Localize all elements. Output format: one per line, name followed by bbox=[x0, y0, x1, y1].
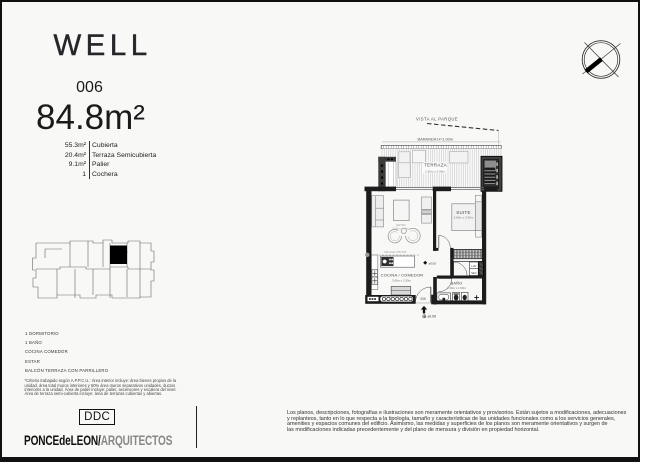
svg-text:BAÑO: BAÑO bbox=[451, 280, 463, 285]
svg-text:BARANDA H=1.00m: BARANDA H=1.00m bbox=[418, 136, 454, 141]
svg-text:3.60m x 4.09m: 3.60m x 4.09m bbox=[392, 227, 409, 231]
svg-text:ESTAR: ESTAR bbox=[396, 223, 405, 227]
svg-text:1.50m x 2.06m: 1.50m x 2.06m bbox=[425, 169, 445, 173]
svg-text:LAV: LAV bbox=[471, 264, 476, 268]
svg-text:TERRAZA: TERRAZA bbox=[424, 163, 447, 168]
svg-text:2.00m x 1.50m: 2.00m x 1.50m bbox=[447, 286, 467, 290]
svg-text:±0.00: ±0.00 bbox=[429, 261, 437, 265]
svg-text:SEC: SEC bbox=[471, 271, 477, 275]
svg-text:3.60m x 3.60m: 3.60m x 3.60m bbox=[454, 216, 474, 220]
svg-text:COCINA / COMEDOR: COCINA / COMEDOR bbox=[381, 273, 424, 278]
svg-text:3.60m x 2.59m: 3.60m x 2.59m bbox=[392, 279, 412, 283]
svg-text:V.05 21x11 SH5 SH5: V.05 21x11 SH5 SH5 bbox=[384, 251, 407, 254]
svg-text:VISTA AL PARQUE: VISTA AL PARQUE bbox=[416, 116, 458, 121]
svg-text:SUITE: SUITE bbox=[456, 210, 470, 215]
svg-text:006: 006 bbox=[420, 297, 426, 301]
svg-text:±0.00: ±0.00 bbox=[427, 315, 436, 319]
